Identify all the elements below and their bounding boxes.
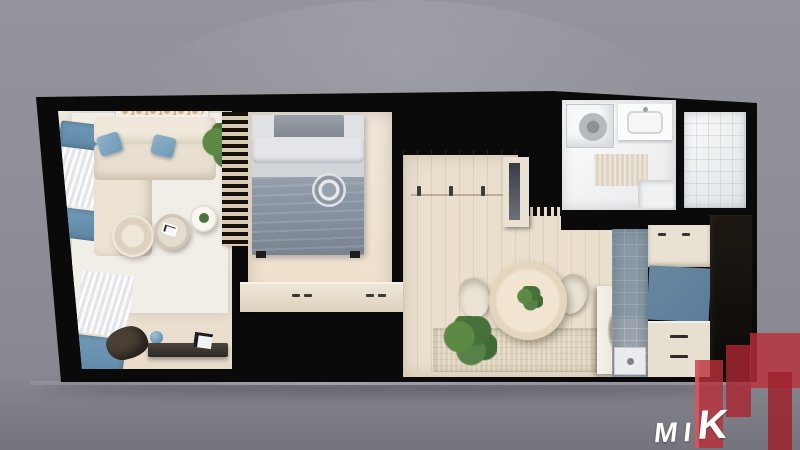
side-tiled-room xyxy=(684,112,746,208)
headboard xyxy=(274,115,344,139)
round-pillow xyxy=(312,173,346,207)
mini-plant xyxy=(199,213,209,223)
sheet-fold xyxy=(252,163,364,177)
shower-cabin xyxy=(566,104,614,148)
slat-divider xyxy=(222,112,248,246)
gray-duvet xyxy=(252,163,364,255)
table-plant xyxy=(517,286,543,312)
coat-hook xyxy=(481,186,485,196)
tv-console xyxy=(148,343,228,357)
dining-table xyxy=(489,262,567,340)
drawer-handle xyxy=(304,294,312,297)
drawer-handle xyxy=(378,294,386,297)
logo-letter: K xyxy=(696,406,732,444)
bed-foot xyxy=(256,251,266,258)
floor-plant xyxy=(443,316,497,368)
duvet-wrinkles xyxy=(252,177,364,255)
sink-vanity xyxy=(618,104,672,140)
toilet xyxy=(638,180,674,208)
mirror-cabinet xyxy=(503,157,529,227)
bathroom xyxy=(558,96,680,214)
mirror xyxy=(509,163,520,220)
double-bed xyxy=(252,115,364,255)
bed-foot xyxy=(350,251,360,258)
sink-basin xyxy=(627,111,663,134)
floorplan-render: M I K xyxy=(0,0,800,450)
tile-grid xyxy=(684,112,746,208)
tiled-wall xyxy=(612,229,648,319)
drain xyxy=(627,358,634,365)
shower-tray xyxy=(614,347,646,375)
magazine xyxy=(161,222,179,237)
bed-pillows xyxy=(252,137,364,163)
tv-panel xyxy=(193,332,213,349)
logo-letter: M xyxy=(653,419,681,445)
coffee-table xyxy=(154,214,190,250)
logo-letter: I xyxy=(682,420,694,445)
cabinet-handle xyxy=(658,233,666,236)
blue-cabinet-panel xyxy=(647,265,712,322)
coat-hook xyxy=(417,186,421,196)
tap xyxy=(643,107,648,112)
round-pouf xyxy=(112,215,154,257)
upper-cabinets xyxy=(648,225,710,267)
cabinet-handle xyxy=(682,233,690,236)
coat-hook xyxy=(449,186,453,196)
coat-rail xyxy=(411,194,503,196)
logo-text: M I K xyxy=(653,389,799,446)
side-table xyxy=(190,205,217,232)
drawer-handle xyxy=(366,294,374,297)
mik-logo: M I K xyxy=(650,325,800,450)
drawer-handle xyxy=(292,294,300,297)
dresser xyxy=(240,282,426,312)
washer-drum xyxy=(579,113,607,141)
